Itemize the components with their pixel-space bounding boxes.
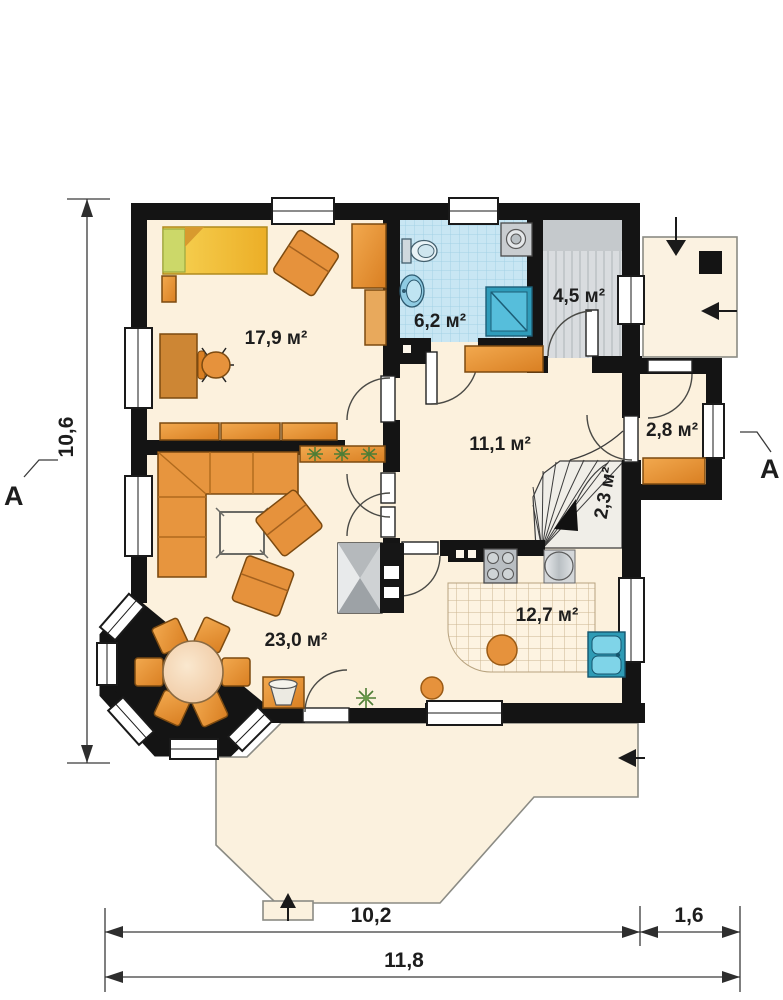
wall-segment (622, 203, 640, 278)
cabinet (365, 290, 386, 345)
plant (356, 688, 376, 708)
closet-cabinet (643, 458, 705, 484)
bedroom-area-label: 17,9 м² (245, 328, 308, 349)
floor-plan-drawing: 17,9 м² 6,2 м² 4,5 м² 2,8 м² 11,1 м² 2,3… (0, 0, 783, 1000)
pantry-landing (541, 220, 624, 251)
wall-segment (349, 708, 427, 723)
wall-detail-square (403, 345, 411, 353)
pillow (163, 229, 185, 272)
sideboard (160, 423, 337, 440)
living-area-label: 23,0 м² (265, 630, 328, 651)
dim-bottom-porch-label: 1,6 (674, 904, 703, 927)
shelf-with-plants (300, 446, 385, 462)
window (170, 739, 218, 759)
window (125, 476, 152, 556)
section-letter-left: A (4, 481, 24, 511)
washbasin (400, 275, 424, 307)
stool (421, 677, 443, 699)
kitchen-counter (448, 546, 486, 562)
terrace-floor (216, 723, 638, 903)
large-planter (263, 677, 304, 708)
wall-segment (131, 203, 147, 330)
dining-chair (222, 658, 250, 686)
window (272, 198, 334, 224)
closet-area-label: 2,8 м² (646, 420, 698, 441)
dim-bottom-main: 10,2 1,6 (105, 904, 740, 992)
section-letter-right: A (760, 454, 780, 484)
nightstand (162, 276, 176, 302)
window (427, 701, 502, 725)
window (125, 328, 152, 408)
fireplace (338, 543, 404, 613)
hall-area-label: 11,1 м² (469, 434, 531, 455)
entrance-porch (643, 217, 737, 357)
bathroom-area-label: 6,2 м² (414, 311, 466, 332)
toilet (402, 239, 437, 263)
stove (484, 549, 517, 583)
window (449, 198, 498, 224)
washing-machine (501, 223, 532, 256)
bed (163, 227, 267, 274)
window (97, 643, 117, 685)
hall-cabinet (465, 346, 543, 372)
porch-post (699, 251, 722, 274)
kitchen-area-label: 12,7 м² (516, 605, 579, 626)
section-marker-left: A (4, 460, 58, 511)
water-heater (544, 550, 575, 583)
wall-segment (131, 203, 640, 220)
section-marker-right: A (740, 432, 780, 484)
stool (487, 635, 517, 665)
shower (486, 287, 532, 336)
dim-bottom-main-label: 10,2 (351, 904, 392, 927)
dim-left-label: 10,6 (55, 417, 78, 458)
porch-floor (643, 237, 737, 357)
floor-plan-page: 17,9 м² 6,2 м² 4,5 м² 2,8 м² 11,1 м² 2,3… (0, 0, 783, 1000)
dim-bottom-total: 11,8 (105, 949, 740, 983)
window (703, 404, 724, 458)
dining-chair (135, 658, 163, 686)
pantry-area-label: 4,5 м² (553, 286, 605, 307)
desk (160, 334, 197, 398)
entry-door (618, 276, 644, 324)
kitchen-tiled-floor (448, 583, 595, 672)
dining-table (163, 641, 223, 703)
kitchen-sink (588, 632, 625, 677)
wardrobe (352, 224, 386, 288)
terrace (216, 723, 645, 921)
dim-bottom-total-label: 11,8 (384, 949, 424, 972)
wall-segment (592, 356, 642, 373)
